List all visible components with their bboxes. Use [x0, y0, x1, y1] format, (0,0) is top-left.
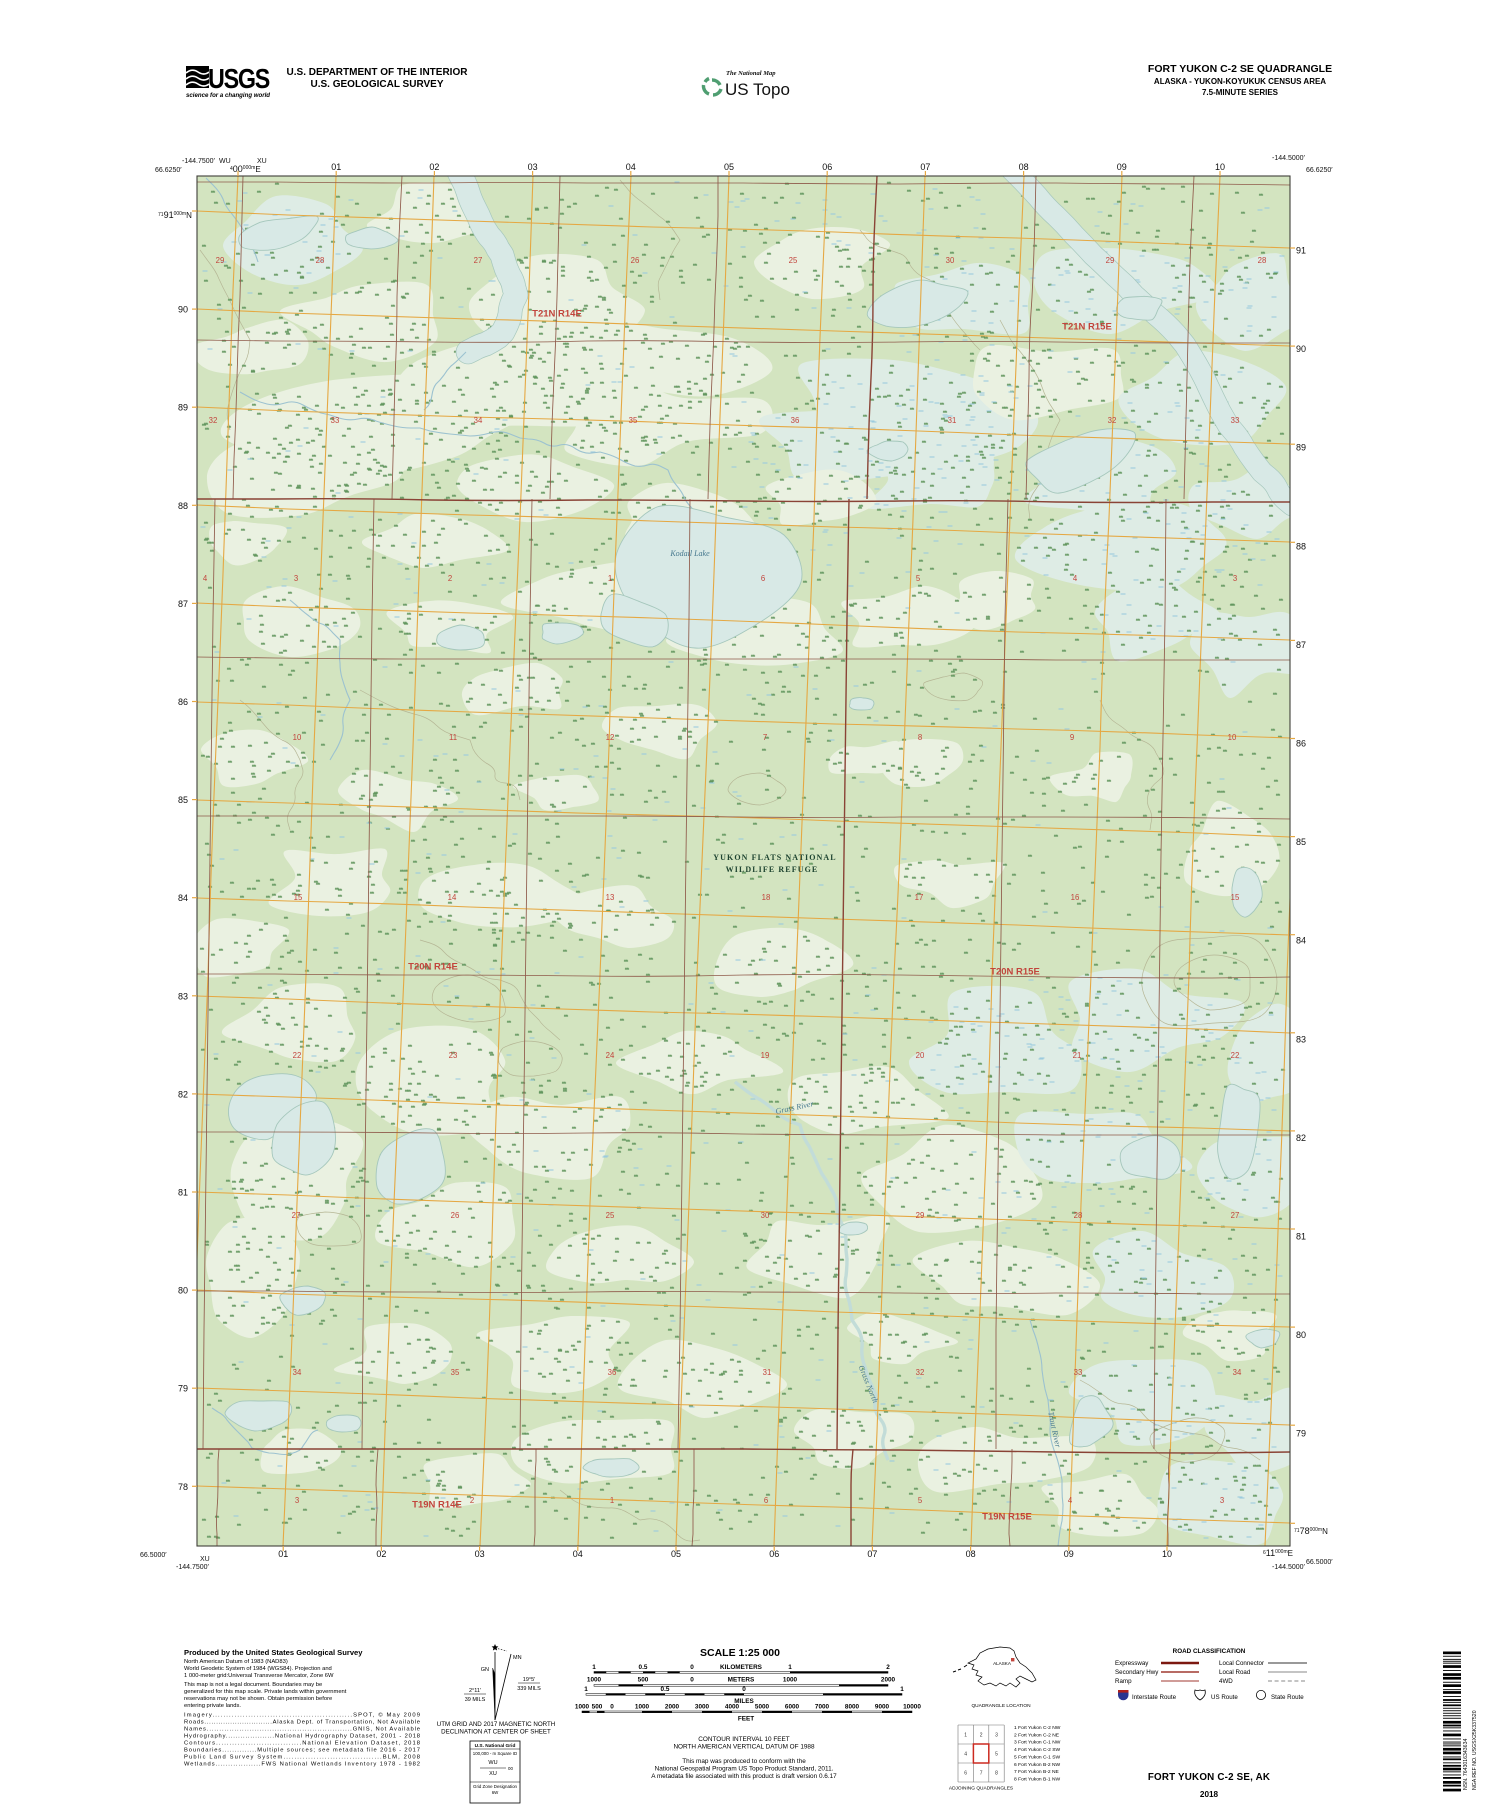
svg-text:81: 81 [1296, 1232, 1306, 1242]
svg-text:11: 11 [449, 733, 457, 742]
svg-text:39 MILS: 39 MILS [465, 1697, 486, 1703]
svg-text:33: 33 [1231, 416, 1240, 425]
svg-text:25: 25 [606, 1211, 615, 1220]
svg-text:U.S. DEPARTMENT OF THE INTERIO: U.S. DEPARTMENT OF THE INTERIOR [287, 67, 469, 78]
svg-text:2°11′: 2°11′ [469, 1688, 481, 1694]
svg-text:14: 14 [448, 893, 457, 902]
svg-text:4: 4 [203, 574, 208, 583]
svg-text:400000mE: 400000mE [230, 164, 261, 174]
svg-text:5 Fort Yukon C-1 SW: 5 Fort Yukon C-1 SW [1014, 1754, 1061, 1760]
svg-text:100,000 - m Square ID: 100,000 - m Square ID [473, 1751, 517, 1756]
svg-text:4000: 4000 [725, 1704, 740, 1711]
svg-text:7178000mN: 7178000mN [1294, 1526, 1328, 1536]
svg-text:01: 01 [331, 162, 341, 172]
svg-text:Grid Zone Designation: Grid Zone Designation [473, 1784, 517, 1789]
svg-text:Names.........................: Names...................................… [184, 1727, 420, 1733]
svg-text:5: 5 [918, 1496, 923, 1505]
svg-text:1: 1 [584, 1686, 588, 1693]
svg-text:05: 05 [671, 1549, 681, 1559]
svg-text:34: 34 [293, 1368, 302, 1377]
svg-text:90: 90 [1296, 344, 1306, 354]
svg-text:State Route: State Route [1271, 1694, 1304, 1701]
svg-text:04: 04 [626, 162, 636, 172]
svg-text:78: 78 [178, 1482, 188, 1492]
svg-text:6: 6 [764, 1496, 768, 1505]
svg-text:SCALE 1:25 000: SCALE 1:25 000 [700, 1647, 780, 1659]
svg-text:10: 10 [1215, 162, 1225, 172]
svg-text:7000: 7000 [815, 1704, 830, 1711]
svg-text:33: 33 [1074, 1368, 1083, 1377]
svg-text:08: 08 [966, 1549, 976, 1559]
svg-text:ALASKA: ALASKA [993, 1661, 1012, 1666]
svg-text:27: 27 [474, 256, 483, 265]
svg-text:30: 30 [761, 1211, 770, 1220]
svg-text:YUKON FLATS NATIONAL: YUKON FLATS NATIONAL [713, 853, 837, 862]
svg-text:34: 34 [474, 416, 483, 425]
svg-text:23: 23 [449, 1051, 458, 1060]
svg-text:CONTOUR INTERVAL 10 FEET: CONTOUR INTERVAL 10 FEET [698, 1736, 789, 1743]
svg-text:science for a changing world: science for a changing world [186, 92, 271, 99]
svg-text:1000: 1000 [587, 1677, 602, 1684]
svg-text:2: 2 [886, 1664, 890, 1671]
svg-text:32: 32 [209, 416, 218, 425]
svg-text:GN: GN [481, 1667, 489, 1673]
svg-text:82: 82 [178, 1089, 188, 1099]
svg-text:06: 06 [769, 1549, 779, 1559]
svg-text:UTM GRID AND 2017 MAGNETIC NOR: UTM GRID AND 2017 MAGNETIC NORTH [437, 1721, 556, 1728]
svg-text:This map was produced to confo: This map was produced to conform with th… [682, 1758, 806, 1765]
svg-text:03: 03 [528, 162, 538, 172]
svg-text:25: 25 [789, 256, 798, 265]
svg-text:This map is not a legal docume: This map is not a legal document. Bounda… [184, 1682, 322, 1688]
svg-text:79: 79 [1296, 1429, 1306, 1439]
svg-text:XU: XU [489, 1771, 497, 1777]
svg-text:09: 09 [1117, 162, 1127, 172]
svg-text:07: 07 [867, 1549, 877, 1559]
svg-text:WU: WU [488, 1760, 497, 1766]
svg-text:1000: 1000 [635, 1704, 650, 1711]
svg-text:35: 35 [451, 1368, 460, 1377]
svg-text:35: 35 [629, 416, 638, 425]
svg-text:WU: WU [219, 158, 231, 165]
svg-text:Public Land Survey Syste: Public Land Survey System...............… [184, 1755, 420, 1761]
svg-text:Secondary Hwy: Secondary Hwy [1115, 1669, 1159, 1676]
svg-text:24: 24 [606, 1051, 615, 1060]
svg-text:4WD: 4WD [1219, 1678, 1233, 1685]
svg-text:81: 81 [178, 1188, 188, 1198]
svg-text:80: 80 [178, 1286, 188, 1296]
svg-text:NSN. 7643016343634: NSN. 7643016343634 [1463, 1739, 1469, 1790]
svg-text:T21N R15E: T21N R15E [1062, 322, 1112, 333]
svg-text:0: 0 [742, 1686, 746, 1693]
svg-text:19: 19 [761, 1051, 770, 1060]
svg-text:3: 3 [1233, 574, 1237, 583]
svg-text:1000: 1000 [783, 1677, 798, 1684]
svg-text:6: 6 [964, 1771, 967, 1777]
svg-text:89: 89 [1296, 443, 1306, 453]
svg-text:1000: 1000 [575, 1704, 590, 1711]
svg-text:34: 34 [1233, 1368, 1242, 1377]
svg-text:0.5: 0.5 [639, 1664, 648, 1671]
svg-text:Hydrography...................: Hydrography....................National … [184, 1734, 420, 1740]
svg-text:5: 5 [916, 574, 921, 583]
svg-text:T20N R14E: T20N R14E [408, 962, 458, 973]
svg-text:3000: 3000 [695, 1704, 710, 1711]
svg-text:3: 3 [295, 1496, 299, 1505]
svg-text:66.6250′: 66.6250′ [1306, 167, 1333, 174]
svg-text:28: 28 [1074, 1211, 1083, 1220]
svg-text:Interstate Route: Interstate Route [1132, 1694, 1177, 1701]
svg-text:NORTH AMERICAN VERTICAL DATUM: NORTH AMERICAN VERTICAL DATUM OF 1988 [673, 1744, 815, 1751]
svg-text:32: 32 [916, 1368, 925, 1377]
svg-text:85: 85 [1296, 837, 1306, 847]
svg-text:20: 20 [916, 1051, 925, 1060]
svg-text:XU: XU [257, 158, 267, 165]
svg-text:1: 1 [608, 574, 612, 583]
svg-text:07: 07 [920, 162, 930, 172]
svg-text:27: 27 [292, 1211, 301, 1220]
svg-text:Wetlands..................FWS: Wetlands..................FWS National W… [184, 1762, 420, 1768]
svg-text:2: 2 [448, 574, 452, 583]
svg-text:Boundaries..............Multip: Boundaries..............Multiple sources… [184, 1748, 420, 1754]
svg-text:66.5000′: 66.5000′ [1306, 1559, 1333, 1566]
svg-text:29: 29 [916, 1211, 925, 1220]
svg-text:84: 84 [1296, 936, 1306, 946]
svg-text:87: 87 [178, 599, 188, 609]
svg-text:6: 6 [761, 574, 765, 583]
svg-text:79: 79 [178, 1384, 188, 1394]
svg-text:10000: 10000 [903, 1704, 921, 1711]
svg-text:USGS: USGS [208, 63, 270, 94]
svg-text:1: 1 [964, 1733, 967, 1739]
svg-text:10: 10 [1228, 733, 1237, 742]
svg-text:26: 26 [631, 256, 640, 265]
svg-text:T20N R15E: T20N R15E [990, 967, 1040, 978]
svg-text:0: 0 [690, 1677, 694, 1684]
svg-text:1: 1 [788, 1664, 792, 1671]
svg-text:22: 22 [1231, 1051, 1240, 1060]
svg-text:83: 83 [178, 991, 188, 1001]
svg-text:21: 21 [1073, 1051, 1082, 1060]
svg-text:80: 80 [1296, 1330, 1306, 1340]
svg-text:03: 03 [475, 1549, 485, 1559]
svg-text:entering private lands.: entering private lands. [184, 1703, 241, 1709]
svg-text:87: 87 [1296, 640, 1306, 650]
svg-text:3: 3 [995, 1733, 998, 1739]
svg-text:FEET: FEET [738, 1716, 754, 1723]
svg-text:6 Fort Yukon B-2 NW: 6 Fort Yukon B-2 NW [1014, 1762, 1061, 1768]
svg-text:15: 15 [294, 893, 303, 902]
svg-text:6W: 6W [492, 1790, 499, 1795]
svg-text:2 Fort Yukon C-2 NE: 2 Fort Yukon C-2 NE [1014, 1732, 1060, 1738]
svg-text:3: 3 [294, 574, 298, 583]
svg-text:QUADRANGLE LOCATION: QUADRANGLE LOCATION [971, 1703, 1031, 1709]
svg-text:28: 28 [1258, 256, 1267, 265]
svg-text:09: 09 [1064, 1549, 1074, 1559]
svg-text:Roads.........................: Roads.............................Alaska… [184, 1720, 420, 1726]
svg-text:4: 4 [964, 1752, 967, 1758]
svg-text:8: 8 [995, 1771, 998, 1777]
svg-text:10: 10 [293, 733, 302, 742]
svg-text:7: 7 [763, 733, 767, 742]
svg-text:A metadata file associated wit: A metadata file associated with this pro… [651, 1773, 837, 1780]
svg-text:7 Fort Yukon B-2 NE: 7 Fort Yukon B-2 NE [1014, 1769, 1060, 1775]
svg-text:5000: 5000 [755, 1704, 770, 1711]
svg-text:4: 4 [1068, 1496, 1073, 1505]
svg-text:82: 82 [1296, 1133, 1306, 1143]
svg-text:02: 02 [376, 1549, 386, 1559]
svg-text:WILDLIFE REFUGE: WILDLIFE REFUGE [726, 865, 819, 874]
svg-text:86: 86 [178, 697, 188, 707]
svg-text:8000: 8000 [845, 1704, 860, 1711]
svg-text:KILOMETERS: KILOMETERS [720, 1664, 763, 1671]
svg-text:DECLINATION AT CENTER OF SHEET: DECLINATION AT CENTER OF SHEET [441, 1729, 551, 1736]
svg-text:02: 02 [429, 162, 439, 172]
svg-text:19°5′: 19°5′ [523, 1677, 535, 1683]
svg-text:8 Fort Yukon B-1 NW: 8 Fort Yukon B-1 NW [1014, 1777, 1061, 1783]
svg-text:4 Fort Yukon C-2 SW: 4 Fort Yukon C-2 SW [1014, 1747, 1061, 1753]
svg-text:7: 7 [980, 1771, 983, 1777]
svg-text:1: 1 [592, 1664, 596, 1671]
svg-text:04: 04 [573, 1549, 583, 1559]
svg-text:US Topo: US Topo [725, 80, 790, 99]
svg-text:85: 85 [178, 795, 188, 805]
svg-text:T19N R15E: T19N R15E [982, 1512, 1032, 1523]
svg-text:31: 31 [763, 1368, 772, 1377]
svg-text:METERS: METERS [728, 1677, 755, 1684]
svg-text:06: 06 [822, 162, 832, 172]
svg-text:16: 16 [1071, 893, 1080, 902]
svg-text:2018: 2018 [1200, 1790, 1219, 1799]
svg-text:MN: MN [513, 1655, 522, 1661]
svg-text:36: 36 [608, 1368, 617, 1377]
svg-text:6000: 6000 [785, 1704, 800, 1711]
svg-text:27: 27 [1231, 1211, 1240, 1220]
svg-text:88: 88 [178, 501, 188, 511]
svg-text:2000: 2000 [881, 1677, 896, 1684]
svg-text:0: 0 [610, 1704, 614, 1711]
svg-text:3: 3 [1220, 1496, 1224, 1505]
svg-text:611000mE: 611000mE [1263, 1548, 1293, 1558]
svg-text:08: 08 [1019, 162, 1029, 172]
svg-text:28: 28 [316, 256, 325, 265]
svg-text:1: 1 [610, 1496, 614, 1505]
svg-text:ADJOINING QUADRANGLES: ADJOINING QUADRANGLES [949, 1786, 1013, 1792]
svg-text:NGA REF NO. USGSX25K337520: NGA REF NO. USGSX25K337520 [1472, 1710, 1478, 1790]
svg-text:32: 32 [1108, 416, 1117, 425]
svg-text:FORT YUKON C-2 SE QUADRANGLE: FORT YUKON C-2 SE QUADRANGLE [1148, 63, 1332, 75]
svg-text:U.S. National Grid: U.S. National Grid [475, 1743, 516, 1749]
svg-text:-144.5000′: -144.5000′ [1272, 1564, 1306, 1571]
svg-text:The National Map: The National Map [726, 70, 776, 77]
svg-text:2000: 2000 [665, 1704, 680, 1711]
svg-text:U.S. GEOLOGICAL SURVEY: U.S. GEOLOGICAL SURVEY [311, 79, 444, 90]
svg-text:1 Fort Yukon C-2 NW: 1 Fort Yukon C-2 NW [1014, 1725, 1061, 1731]
svg-text:8: 8 [918, 733, 922, 742]
svg-text:ALASKA - YUKON-KOYUKUK CENSUS: ALASKA - YUKON-KOYUKUK CENSUS AREA [1154, 77, 1326, 86]
svg-text:-144.7500′: -144.7500′ [182, 158, 216, 165]
svg-text:88: 88 [1296, 541, 1306, 551]
svg-text:05: 05 [724, 162, 734, 172]
svg-text:Local Connector: Local Connector [1219, 1660, 1264, 1667]
svg-text:30: 30 [946, 256, 955, 265]
svg-text:7.5-MINUTE SERIES: 7.5-MINUTE SERIES [1202, 88, 1279, 97]
svg-text:29: 29 [216, 256, 225, 265]
svg-text:15: 15 [1231, 893, 1240, 902]
svg-text:9000: 9000 [875, 1704, 890, 1711]
svg-text:Kodail Lake: Kodail Lake [669, 549, 710, 558]
svg-text:FORT YUKON C-2 SE, AK: FORT YUKON C-2 SE, AK [1148, 1772, 1270, 1783]
svg-text:01: 01 [278, 1549, 288, 1559]
svg-text:339 MILS: 339 MILS [517, 1686, 541, 1692]
svg-text:reservations may not be shown.: reservations may not be shown. Obtain pe… [184, 1696, 332, 1702]
svg-text:0: 0 [690, 1664, 694, 1671]
svg-text:T19N R14E: T19N R14E [412, 1500, 462, 1511]
svg-text:XU: XU [200, 1556, 210, 1563]
svg-text:500: 500 [638, 1677, 649, 1684]
svg-text:7191000mN: 7191000mN [158, 210, 192, 220]
svg-text:00: 00 [508, 1766, 513, 1771]
svg-text:Produced by the United States: Produced by the United States Geological… [184, 1648, 363, 1657]
svg-text:T21N R14E: T21N R14E [532, 309, 582, 320]
svg-text:Imagery.......................: Imagery.................................… [184, 1712, 420, 1719]
svg-text:9: 9 [1070, 733, 1074, 742]
svg-text:91: 91 [1296, 246, 1306, 256]
svg-text:-144.5000′: -144.5000′ [1272, 155, 1306, 162]
svg-text:36: 36 [791, 416, 800, 425]
svg-text:10: 10 [1162, 1549, 1172, 1559]
svg-text:86: 86 [1296, 739, 1306, 749]
svg-text:2: 2 [470, 1496, 474, 1505]
svg-text:83: 83 [1296, 1034, 1306, 1044]
svg-text:Ramp: Ramp [1115, 1678, 1132, 1685]
svg-text:89: 89 [178, 403, 188, 413]
svg-text:500: 500 [592, 1704, 603, 1711]
svg-text:66.5000′: 66.5000′ [140, 1552, 167, 1559]
svg-text:World Geodetic System of 1984: World Geodetic System of 1984 (WGS84). P… [184, 1666, 332, 1672]
svg-text:1: 1 [900, 1686, 904, 1693]
svg-text:generalized for this map scale: generalized for this map scale. Private … [184, 1689, 347, 1695]
svg-text:90: 90 [178, 305, 188, 315]
svg-text:North American Datum of 1983 (: North American Datum of 1983 (NAD83) [184, 1659, 288, 1665]
svg-text:US Route: US Route [1211, 1694, 1238, 1701]
svg-text:Local Road: Local Road [1219, 1669, 1251, 1676]
svg-text:29: 29 [1106, 256, 1115, 265]
svg-text:2: 2 [980, 1733, 983, 1739]
svg-text:ROAD CLASSIFICATION: ROAD CLASSIFICATION [1173, 1648, 1246, 1655]
svg-text:5: 5 [995, 1752, 998, 1758]
svg-text:84: 84 [178, 893, 188, 903]
svg-text:3 Fort Yukon C-1 NW: 3 Fort Yukon C-1 NW [1014, 1740, 1061, 1746]
svg-text:12: 12 [606, 733, 615, 742]
svg-text:Expressway: Expressway [1115, 1660, 1149, 1667]
svg-text:Contours......................: Contours................................… [184, 1741, 420, 1747]
svg-text:18: 18 [762, 893, 771, 902]
svg-text:33: 33 [331, 416, 340, 425]
svg-text:66.6250′: 66.6250′ [155, 167, 182, 174]
svg-text:22: 22 [293, 1051, 302, 1060]
svg-text:26: 26 [451, 1211, 460, 1220]
svg-text:17: 17 [915, 893, 924, 902]
svg-text:31: 31 [948, 416, 957, 425]
svg-text:0.5: 0.5 [661, 1686, 670, 1693]
svg-text:-144.7500′: -144.7500′ [176, 1564, 210, 1571]
svg-text:National Geospatial Program US: National Geospatial Program US Topo Prod… [655, 1766, 834, 1773]
svg-text:4: 4 [1073, 574, 1078, 583]
svg-text:13: 13 [606, 893, 615, 902]
svg-text:1 000-meter grid:Universal Tra: 1 000-meter grid:Universal Transverse Me… [184, 1673, 334, 1679]
